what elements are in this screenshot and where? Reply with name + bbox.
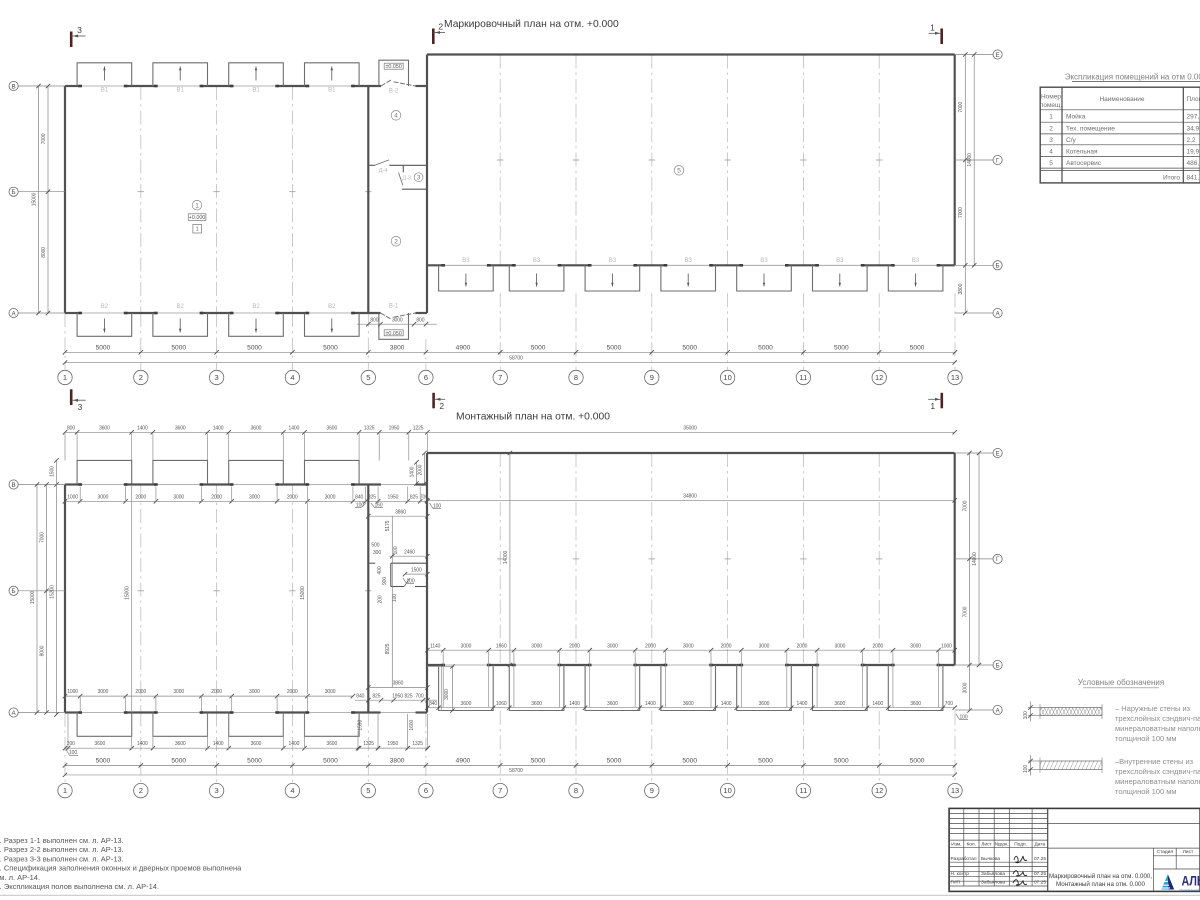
svg-text:5000: 5000 (96, 344, 111, 351)
svg-text:13: 13 (951, 786, 959, 795)
svg-text:В3: В3 (685, 258, 693, 264)
svg-text:800: 800 (370, 318, 378, 324)
svg-text:3000: 3000 (683, 643, 694, 649)
svg-text:35000: 35000 (683, 425, 697, 431)
svg-text:800: 800 (67, 425, 75, 431)
svg-text:100: 100 (433, 503, 441, 509)
svg-text:1: 1 (63, 786, 67, 795)
svg-text:В3: В3 (836, 258, 844, 264)
svg-text:Номер: Номер (1041, 94, 1061, 101)
svg-text:Разработал: Разработал (951, 856, 977, 862)
svg-text:1400: 1400 (409, 466, 415, 477)
svg-text:Мойка: Мойка (1066, 113, 1086, 121)
svg-text:1400: 1400 (645, 701, 656, 707)
svg-text:100: 100 (356, 502, 364, 508)
svg-text:1060: 1060 (496, 701, 507, 707)
svg-text:1950: 1950 (387, 741, 398, 747)
svg-text:Наименование: Наименование (1099, 96, 1144, 103)
svg-text:4: 4 (290, 373, 294, 382)
svg-text:2000: 2000 (797, 643, 808, 649)
svg-text:5000: 5000 (323, 344, 338, 351)
svg-text:Лист: Лист (981, 841, 992, 847)
svg-text:В2: В2 (328, 304, 336, 310)
svg-text:±0.050: ±0.050 (385, 64, 401, 70)
svg-text:3000: 3000 (910, 643, 921, 649)
svg-text:Лист: Лист (1183, 849, 1194, 855)
svg-text:1: 1 (195, 203, 199, 210)
svg-text:3: 3 (215, 786, 219, 795)
svg-text:трехслойных сэндвич-панелей с: трехслойных сэндвич-панелей с (1115, 714, 1200, 723)
svg-text:1590: 1590 (358, 720, 364, 731)
svg-text:±0.050: ±0.050 (385, 331, 401, 337)
svg-text:В3: В3 (533, 258, 541, 264)
svg-text:7000: 7000 (958, 102, 964, 113)
svg-text:100: 100 (69, 750, 77, 756)
svg-text:3600: 3600 (251, 425, 262, 431)
svg-text:1400: 1400 (569, 701, 580, 707)
svg-text:4. Спецификация заполнения око: 4. Спецификация заполнения оконных и две… (0, 864, 242, 873)
svg-text:3600: 3600 (326, 425, 337, 431)
svg-text:строительная компания: строительная компания (1179, 889, 1200, 893)
svg-text:4: 4 (394, 113, 398, 120)
svg-text:14000: 14000 (503, 550, 509, 564)
svg-text:1000: 1000 (67, 494, 78, 500)
svg-text:толщиной 100 мм: толщиной 100 мм (1115, 787, 1177, 796)
svg-text:3600: 3600 (326, 741, 337, 747)
svg-text:5000: 5000 (682, 344, 697, 351)
svg-text:100: 100 (406, 578, 414, 584)
svg-text:700: 700 (945, 701, 953, 707)
svg-text:1400: 1400 (289, 741, 300, 747)
svg-text:Котельная: Котельная (1066, 148, 1098, 155)
svg-text:3000: 3000 (98, 689, 109, 695)
svg-text:7: 7 (498, 373, 502, 382)
svg-text:1325: 1325 (364, 425, 375, 431)
svg-text:Б: Б (996, 264, 1000, 270)
svg-text:Экспликация помещений на отм 0: Экспликация помещений на отм 0.000 (1065, 73, 1200, 82)
svg-text:10: 10 (723, 786, 731, 795)
svg-text:9: 9 (650, 373, 654, 382)
svg-text:2000: 2000 (135, 689, 146, 695)
svg-text:58700: 58700 (509, 355, 523, 361)
svg-text:Монтажный план на отм. +0.000: Монтажный план на отм. +0.000 (456, 412, 610, 423)
svg-text:5: 5 (366, 373, 370, 382)
svg-text:№док.: №док. (995, 841, 1009, 847)
svg-text:2000: 2000 (211, 689, 222, 695)
svg-text:4: 4 (290, 786, 294, 795)
svg-text:400: 400 (377, 566, 383, 574)
svg-text:В2: В2 (177, 304, 185, 310)
svg-text:5000: 5000 (607, 757, 622, 764)
svg-text:15000: 15000 (30, 590, 36, 604)
svg-text:АЛЬЯНС: АЛЬЯНС (1182, 873, 1200, 889)
svg-text:3600: 3600 (94, 741, 105, 747)
svg-text:В: В (12, 84, 16, 90)
svg-text:100: 100 (1023, 711, 1029, 719)
svg-text:1400: 1400 (872, 701, 883, 707)
svg-text:А: А (996, 708, 1000, 714)
svg-text:1500: 1500 (49, 466, 55, 477)
svg-text:825: 825 (410, 494, 418, 500)
svg-text:34800: 34800 (683, 494, 697, 500)
svg-text:5000: 5000 (171, 757, 186, 764)
svg-text:2: 2 (1049, 125, 1053, 132)
svg-text:5000: 5000 (323, 757, 338, 764)
svg-text:С/у: С/у (1066, 137, 1077, 144)
svg-text:3860: 3860 (393, 681, 404, 687)
svg-text:Д-3: Д-3 (402, 176, 411, 182)
svg-text:6: 6 (424, 373, 428, 382)
svg-text:3600: 3600 (759, 701, 770, 707)
svg-text:3. Разрез 3-3 выполнен см. л.: 3. Разрез 3-3 выполнен см. л. АР-13. (0, 854, 124, 863)
svg-text:5. Экспликация полов выполнена: 5. Экспликация полов выполнена см. л. АР… (0, 882, 159, 891)
svg-text:5000: 5000 (910, 757, 925, 764)
svg-text:14000: 14000 (967, 153, 973, 167)
svg-text:5000: 5000 (834, 344, 849, 351)
svg-text:1: 1 (1049, 114, 1053, 121)
svg-text:12: 12 (875, 786, 883, 795)
svg-text:5000: 5000 (171, 344, 186, 351)
svg-text:2000: 2000 (872, 643, 883, 649)
svg-text:100: 100 (393, 546, 399, 554)
svg-text:3000: 3000 (173, 494, 184, 500)
svg-text:Б: Б (12, 589, 16, 595)
svg-text:–Внутренние стены из: –Внутренние стены из (1115, 757, 1194, 766)
svg-text:3000: 3000 (835, 643, 846, 649)
svg-text:34,9: 34,9 (1187, 125, 1200, 132)
svg-text:3: 3 (1049, 137, 1053, 144)
svg-text:5000: 5000 (758, 757, 773, 764)
svg-text:841,0: 841,0 (1187, 175, 1200, 182)
svg-text:700: 700 (415, 693, 423, 699)
svg-text:4900: 4900 (456, 344, 471, 351)
svg-text:1325: 1325 (363, 741, 374, 747)
svg-text:Площадь, м2: Площадь, м2 (1187, 96, 1200, 103)
svg-text:В1: В1 (177, 88, 185, 94)
svg-text:5000: 5000 (96, 757, 111, 764)
svg-text:1400: 1400 (213, 425, 224, 431)
svg-text:3800: 3800 (390, 344, 405, 351)
svg-text:3600: 3600 (175, 425, 186, 431)
svg-text:15000: 15000 (31, 192, 37, 206)
svg-text:3000: 3000 (444, 689, 450, 700)
svg-text:11: 11 (800, 373, 808, 382)
svg-text:1400: 1400 (797, 701, 808, 707)
svg-text:Условные обозначения: Условные обозначения (1078, 678, 1164, 687)
svg-text:3000: 3000 (325, 494, 336, 500)
svg-text:3600: 3600 (251, 741, 262, 747)
svg-text:ГИП: ГИП (951, 880, 961, 886)
svg-text:100: 100 (1023, 765, 1029, 773)
svg-text:В-2: В-2 (389, 89, 399, 95)
svg-text:7000: 7000 (962, 606, 968, 617)
svg-text:1600: 1600 (409, 720, 415, 731)
svg-text:2000: 2000 (569, 643, 580, 649)
svg-text:В-1: В-1 (389, 304, 399, 310)
svg-text:3600: 3600 (175, 741, 186, 747)
svg-text:3000: 3000 (249, 689, 260, 695)
svg-text:В1: В1 (252, 88, 260, 94)
svg-text:1950: 1950 (388, 494, 399, 500)
svg-text:2,2: 2,2 (1187, 137, 1196, 144)
svg-text:Забьялова: Забьялова (981, 880, 1005, 886)
svg-text:минераловатным наполнителем: минераловатным наполнителем (1115, 777, 1200, 786)
svg-text:Маркировочный план на отм. +0.: Маркировочный план на отм. +0.000 (444, 19, 619, 30)
svg-text:3000: 3000 (461, 643, 472, 649)
svg-text:2460: 2460 (404, 549, 415, 555)
svg-text:3600: 3600 (461, 701, 472, 707)
svg-text:3800: 3800 (390, 757, 405, 764)
svg-text:1: 1 (930, 23, 935, 33)
svg-text:4: 4 (1049, 148, 1053, 155)
svg-text:Изм.: Изм. (951, 841, 961, 847)
svg-text:см. л. АР-14.: см. л. АР-14. (0, 873, 40, 882)
svg-text:Автосервис: Автосервис (1066, 160, 1102, 167)
svg-text:5: 5 (1049, 160, 1053, 167)
svg-text:В3: В3 (760, 258, 768, 264)
svg-text:3000: 3000 (249, 494, 260, 500)
svg-text:В3: В3 (609, 258, 617, 264)
svg-text:800: 800 (416, 318, 424, 324)
svg-text:2: 2 (439, 401, 444, 411)
svg-text:Кол.: Кол. (966, 841, 976, 847)
svg-text:А: А (12, 711, 16, 717)
svg-text:2. Разрез 2-2 выполнен см. л.: 2. Разрез 2-2 выполнен см. л. АР-13. (0, 845, 124, 854)
svg-text:1950: 1950 (389, 425, 400, 431)
svg-text:14000: 14000 (972, 552, 978, 566)
svg-text:7000: 7000 (958, 207, 964, 218)
svg-text:486,1: 486,1 (1187, 160, 1200, 167)
svg-text:Бычкова: Бычкова (981, 856, 1000, 862)
svg-text:300: 300 (373, 550, 381, 556)
svg-text:07.25: 07.25 (1034, 880, 1046, 886)
svg-text:2: 2 (394, 239, 398, 246)
svg-text:3: 3 (215, 373, 219, 382)
svg-text:15200: 15200 (49, 585, 55, 599)
svg-text:2000: 2000 (287, 689, 298, 695)
svg-text:5: 5 (677, 168, 681, 175)
svg-text:3800: 3800 (958, 283, 964, 294)
svg-text:1: 1 (196, 227, 199, 233)
svg-text:2000: 2000 (287, 494, 298, 500)
svg-text:2: 2 (139, 373, 143, 382)
svg-text:13: 13 (951, 373, 959, 382)
svg-text:3600: 3600 (910, 701, 921, 707)
svg-text:5000: 5000 (834, 757, 849, 764)
svg-text:200: 200 (378, 595, 384, 603)
svg-text:19,9: 19,9 (1187, 148, 1200, 155)
svg-text:58700: 58700 (509, 768, 523, 774)
svg-text:7000: 7000 (41, 133, 47, 144)
svg-text:1. Разрез 1-1 выполнен см. л.: 1. Разрез 1-1 выполнен см. л. АР-13. (0, 836, 124, 845)
svg-text:2: 2 (139, 786, 143, 795)
svg-text:5000: 5000 (531, 757, 546, 764)
svg-text:15000: 15000 (300, 586, 306, 600)
svg-text:+0.000: +0.000 (189, 215, 206, 221)
svg-text:3: 3 (77, 25, 82, 35)
svg-text:840: 840 (355, 494, 363, 500)
svg-text:2: 2 (438, 22, 443, 32)
svg-text:07.25: 07.25 (1034, 871, 1046, 877)
svg-text:160: 160 (374, 502, 382, 508)
svg-text:11: 11 (800, 786, 808, 795)
svg-text:В1: В1 (101, 88, 109, 94)
svg-text:В2: В2 (101, 304, 109, 310)
svg-text:5000: 5000 (607, 344, 622, 351)
svg-text:3600: 3600 (99, 425, 110, 431)
svg-text:7: 7 (498, 786, 502, 795)
svg-text:В: В (12, 483, 16, 489)
svg-text:7000: 7000 (962, 500, 968, 511)
svg-text:07.25: 07.25 (1034, 856, 1046, 862)
svg-text:5: 5 (366, 786, 370, 795)
svg-text:Н. контр: Н. контр (951, 871, 970, 877)
svg-text:Б: Б (996, 663, 1000, 669)
svg-text:5000: 5000 (910, 344, 925, 351)
svg-text:297,9: 297,9 (1187, 114, 1200, 121)
svg-text:4900: 4900 (456, 757, 471, 764)
svg-text:3000: 3000 (759, 643, 770, 649)
svg-text:5000: 5000 (247, 757, 262, 764)
svg-text:Итого: Итого (1163, 175, 1180, 182)
svg-text:1: 1 (930, 401, 935, 411)
svg-text:3600: 3600 (683, 701, 694, 707)
svg-text:А: А (996, 311, 1000, 317)
svg-text:12: 12 (875, 373, 883, 382)
svg-text:6: 6 (424, 786, 428, 795)
svg-text:8: 8 (574, 786, 578, 795)
svg-text:5175: 5175 (385, 520, 391, 531)
svg-text:1140: 1140 (430, 643, 441, 649)
svg-text:7000: 7000 (39, 532, 45, 543)
svg-text:1500: 1500 (411, 567, 422, 573)
svg-text:8000: 8000 (39, 645, 45, 656)
svg-text:толщиной 100 мм: толщиной 100 мм (1115, 734, 1177, 743)
svg-text:5000: 5000 (531, 344, 546, 351)
svg-text:Д-4: Д-4 (379, 168, 388, 174)
svg-text:3: 3 (78, 402, 83, 412)
svg-text:3000: 3000 (98, 494, 109, 500)
svg-text:1000: 1000 (941, 643, 952, 649)
svg-text:100: 100 (959, 714, 967, 720)
svg-text:Маркировочный план на отм. 0.0: Маркировочный план на отм. 0.000, (1049, 873, 1152, 880)
svg-text:А: А (12, 311, 16, 317)
svg-text:9: 9 (650, 786, 654, 795)
svg-text:Монтажный план на отм. 0.000: Монтажный план на отм. 0.000 (1056, 881, 1145, 888)
svg-text:8000: 8000 (41, 247, 47, 258)
svg-text:Забьялова: Забьялова (981, 871, 1005, 877)
svg-text:3000: 3000 (173, 689, 184, 695)
svg-text:3000: 3000 (531, 643, 542, 649)
svg-text:В2: В2 (252, 304, 260, 310)
svg-text:5000: 5000 (682, 757, 697, 764)
svg-text:Е: Е (996, 53, 1000, 59)
svg-text:Е: Е (996, 451, 1000, 457)
svg-text:Стадия: Стадия (1157, 849, 1174, 855)
svg-text:1225: 1225 (413, 425, 424, 431)
svg-text:3000: 3000 (607, 643, 618, 649)
svg-text:1325: 1325 (412, 741, 423, 747)
svg-text:100: 100 (392, 594, 398, 602)
svg-text:2000: 2000 (135, 494, 146, 500)
svg-text:825: 825 (372, 693, 380, 699)
svg-text:2000: 2000 (645, 643, 656, 649)
svg-text:3860: 3860 (395, 509, 406, 515)
svg-text:3000: 3000 (392, 318, 403, 324)
svg-text:2000: 2000 (211, 494, 222, 500)
svg-text:3600: 3600 (834, 701, 845, 707)
svg-text:5000: 5000 (247, 344, 262, 351)
svg-text:В3: В3 (912, 258, 920, 264)
svg-text:3000: 3000 (325, 689, 336, 695)
svg-text:помещ.: помещ. (1040, 102, 1063, 109)
svg-text:840: 840 (429, 701, 437, 707)
svg-text:2000: 2000 (417, 464, 423, 475)
svg-text:минераловатным наполнителем: минераловатным наполнителем (1115, 724, 1200, 733)
svg-text:1400: 1400 (137, 425, 148, 431)
svg-text:700: 700 (420, 494, 428, 500)
svg-text:1000: 1000 (67, 689, 78, 695)
svg-text:1400: 1400 (289, 425, 300, 431)
svg-text:Тех. помещение: Тех. помещение (1066, 125, 1115, 132)
svg-text:1400: 1400 (137, 741, 148, 747)
svg-text:трехслойных сэндвич-панелей с: трехслойных сэндвич-панелей с (1115, 767, 1200, 776)
svg-text:2000: 2000 (721, 643, 732, 649)
svg-text:3000: 3000 (962, 682, 968, 693)
svg-text:1400: 1400 (213, 741, 224, 747)
svg-text:15000: 15000 (125, 586, 131, 600)
svg-text:8: 8 (574, 373, 578, 382)
svg-text:3600: 3600 (531, 701, 542, 707)
svg-text:500: 500 (371, 543, 379, 549)
svg-text:1660: 1660 (496, 643, 507, 649)
svg-text:840: 840 (356, 693, 364, 699)
svg-text:3: 3 (417, 175, 421, 182)
svg-text:В1: В1 (328, 88, 336, 94)
svg-text:Б: Б (12, 190, 16, 196)
svg-text:1: 1 (63, 373, 67, 382)
svg-text:Подп.: Подп. (1014, 841, 1027, 847)
svg-text:1400: 1400 (721, 701, 732, 707)
svg-text:3600: 3600 (607, 701, 618, 707)
svg-text:5000: 5000 (758, 344, 773, 351)
svg-text:825: 825 (404, 693, 412, 699)
svg-text:Дата: Дата (1034, 841, 1045, 847)
svg-text:– Наружные стены из: – Наружные стены из (1115, 704, 1191, 713)
svg-text:В3: В3 (462, 258, 470, 264)
svg-text:1950: 1950 (392, 693, 403, 699)
svg-text:900: 900 (382, 577, 388, 585)
svg-text:8925: 8925 (385, 643, 391, 654)
svg-text:10: 10 (723, 373, 731, 382)
